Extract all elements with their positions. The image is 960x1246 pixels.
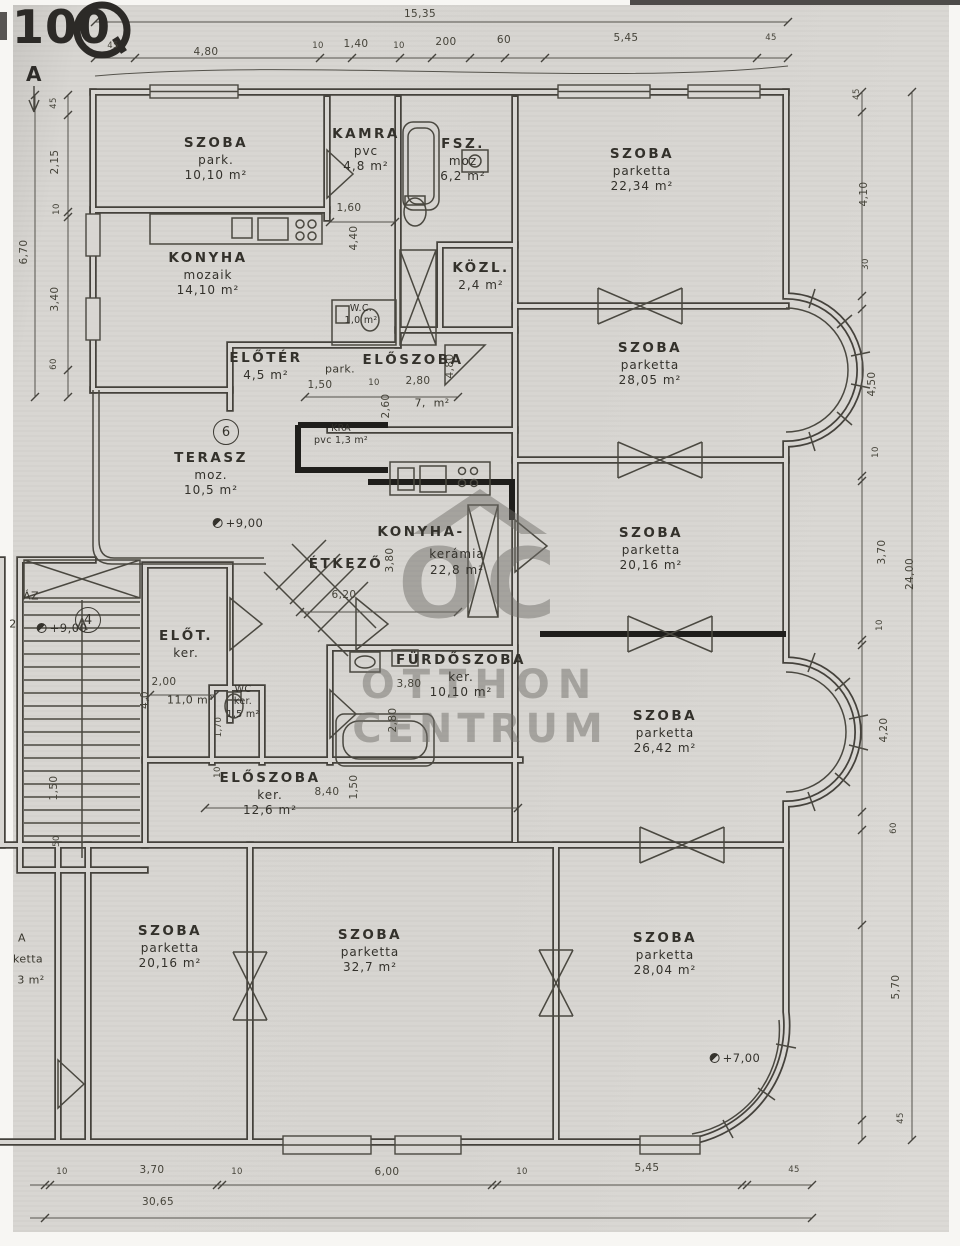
room-name: WC bbox=[227, 684, 260, 696]
room-name: KÖZL. bbox=[452, 260, 509, 278]
level-marker-icon bbox=[710, 1053, 720, 1063]
dimension-label: 45 bbox=[852, 88, 862, 100]
level-mark: +7,00 bbox=[710, 1051, 761, 1065]
dimension-label: 45 bbox=[896, 1112, 906, 1124]
room-name: ÉTKEZŐ bbox=[309, 556, 383, 574]
room-label: kerámia22,8 m² bbox=[429, 547, 485, 578]
detail-linework bbox=[24, 92, 870, 1146]
text-label: 3 m² bbox=[17, 974, 44, 987]
room-detail: 20,16 m² bbox=[138, 956, 202, 972]
dimension-label: 4,40 bbox=[348, 226, 360, 251]
room-label: FÜRDŐSZOBAker.10,10 m² bbox=[396, 652, 526, 701]
dimension-label: 2,15 bbox=[49, 150, 61, 175]
circled-number: 6 bbox=[213, 419, 239, 445]
room-label: KÖZL.2,4 m² bbox=[452, 260, 509, 293]
room-detail: parketta bbox=[610, 164, 674, 180]
room-detail: pvc bbox=[332, 144, 400, 160]
room-detail: 14,10 m² bbox=[168, 283, 247, 299]
dimension-label: 10 bbox=[52, 203, 62, 215]
room-label: SZOBAparketta20,16 m² bbox=[619, 525, 683, 574]
room-detail: 1,0 m² bbox=[345, 315, 378, 327]
room-detail: 10,10 m² bbox=[396, 685, 526, 701]
room-detail: moz bbox=[440, 154, 485, 170]
room-detail: 12,6 m² bbox=[219, 803, 320, 819]
room-name: ELŐSZOBA bbox=[219, 770, 320, 788]
room-name: SZOBA bbox=[618, 340, 682, 358]
room-label: ÉTKEZŐ bbox=[309, 556, 383, 574]
dimension-label: 1,50 bbox=[48, 776, 60, 801]
room-name: KRA bbox=[314, 423, 368, 435]
room-label: SZOBAparketta28,04 m² bbox=[633, 930, 697, 979]
room-label: SZOBAparketta22,34 m² bbox=[610, 146, 674, 195]
room-label: ELŐTÉR4,5 m² bbox=[229, 350, 302, 383]
dimension-label: 50 bbox=[52, 835, 62, 847]
room-detail: 1,5 m² bbox=[227, 709, 260, 721]
dimension-label: 10 bbox=[871, 446, 881, 458]
room-name: SZOBA bbox=[610, 146, 674, 164]
room-label: SZOBAparketta28,05 m² bbox=[618, 340, 682, 389]
room-name: ELŐSZOBA bbox=[362, 352, 463, 370]
room-detail: 6,2 m² bbox=[440, 169, 485, 185]
dimension-label: 2,00 bbox=[152, 676, 177, 688]
scan-artifact bbox=[630, 0, 960, 5]
dimension-label: 24,00 bbox=[904, 558, 916, 590]
room-label: KAMRApvc4,8 m² bbox=[332, 126, 400, 175]
room-name: KAMRA bbox=[332, 126, 400, 144]
room-name: KONYHA- bbox=[377, 524, 464, 542]
dimension-label: 45 bbox=[107, 41, 119, 51]
level-mark: +9,00 bbox=[37, 621, 88, 635]
room-name: TERASZ bbox=[174, 450, 248, 468]
room-label: FSZ.moz6,2 m² bbox=[440, 136, 485, 185]
room-detail: 10,10 m² bbox=[184, 168, 248, 184]
dimension-label: 3,80 bbox=[384, 548, 396, 573]
dimension-label: 60 bbox=[49, 358, 59, 370]
room-detail: 22,34 m² bbox=[610, 179, 674, 195]
room-detail: parketta bbox=[633, 726, 697, 742]
dimension-label: 1,70 bbox=[214, 717, 224, 738]
room-name: SZOBA bbox=[138, 923, 202, 941]
dimension-label: 10 bbox=[312, 41, 324, 51]
room-name: W.C. bbox=[345, 303, 378, 315]
level-marker-icon bbox=[37, 623, 47, 633]
dimension-label: 10 bbox=[875, 619, 885, 631]
text-label: 2 bbox=[9, 618, 16, 631]
dimension-label: 5,70 bbox=[890, 975, 902, 1000]
room-name: ELŐTÉR bbox=[229, 350, 302, 368]
room-detail: 22,8 m² bbox=[429, 563, 485, 579]
room-label: TERASZmoz.10,5 m² bbox=[174, 450, 248, 499]
dimension-label: 1,50 bbox=[348, 775, 360, 800]
room-name: FÜRDŐSZOBA bbox=[396, 652, 526, 670]
dimension-label: 10 bbox=[368, 378, 380, 388]
dimension-label: 60 bbox=[497, 34, 511, 46]
dimension-label: 60 bbox=[889, 822, 899, 834]
dimension-label: 6,20 bbox=[332, 589, 357, 601]
room-detail: 20,16 m² bbox=[619, 558, 683, 574]
dimension-label: 6,00 bbox=[375, 1166, 400, 1178]
dimension-label: 2,80 bbox=[406, 375, 431, 387]
dimension-label: 10 bbox=[56, 1167, 68, 1177]
room-name: SZOBA bbox=[338, 927, 402, 945]
room-detail: ker. bbox=[219, 788, 320, 804]
room-label: ELŐSZOBA bbox=[362, 352, 463, 370]
dimension-label: 4,20 bbox=[878, 718, 890, 743]
scan-artifact bbox=[0, 12, 7, 40]
room-detail: ker. bbox=[159, 646, 213, 662]
level-marker-icon bbox=[213, 518, 223, 528]
dimension-label: 2,60 bbox=[380, 394, 392, 419]
room-label: ELŐSZOBAker.12,6 m² bbox=[219, 770, 320, 819]
dimension-label: 30 bbox=[861, 258, 871, 270]
dimension-label: 10 bbox=[231, 1167, 243, 1177]
room-detail: 2,4 m² bbox=[452, 278, 509, 294]
dimension-label: 200 bbox=[435, 36, 456, 48]
text-label: ÁZ bbox=[23, 590, 39, 603]
room-name: kerámia bbox=[429, 547, 485, 563]
room-name: SZOBA bbox=[633, 708, 697, 726]
room-label: SZOBApark.10,10 m² bbox=[184, 135, 248, 184]
room-detail: 4,8 m² bbox=[332, 159, 400, 175]
room-label: SZOBAparketta20,16 m² bbox=[138, 923, 202, 972]
room-detail: 28,04 m² bbox=[633, 963, 697, 979]
room-detail: ker. bbox=[227, 696, 260, 708]
dimension-label: 4,50 bbox=[866, 372, 878, 397]
room-name: SZOBA bbox=[619, 525, 683, 543]
room-detail: parketta bbox=[138, 941, 202, 957]
room-detail: 28,05 m² bbox=[618, 373, 682, 389]
room-label: WCker.1,5 m² bbox=[227, 684, 260, 721]
dimension-label: 10 bbox=[393, 41, 405, 51]
text-label: A bbox=[18, 932, 26, 945]
dimension-label: 15,35 bbox=[404, 8, 436, 20]
scale-stamp: 100 bbox=[12, 0, 111, 54]
dimension-label: 45 bbox=[788, 1165, 800, 1175]
dimension-label: 3,70 bbox=[876, 540, 888, 565]
dimension-label: 6,70 bbox=[18, 240, 30, 265]
room-name: SZOBA bbox=[633, 930, 697, 948]
room-label: ELŐT.ker. bbox=[159, 628, 213, 661]
room-label: KONYHAmozaik14,10 m² bbox=[168, 250, 247, 299]
room-detail: pvc 1,3 m² bbox=[314, 435, 368, 447]
room-detail: moz. bbox=[174, 468, 248, 484]
dimension-label: 2,80 bbox=[387, 708, 399, 733]
text-label: ketta bbox=[13, 953, 43, 966]
room-label: SZOBAparketta26,42 m² bbox=[633, 708, 697, 757]
text-label: A bbox=[26, 62, 42, 86]
room-label: KONYHA- bbox=[377, 524, 464, 542]
room-detail: parketta bbox=[618, 358, 682, 374]
dimension-label: 4,80 bbox=[194, 46, 219, 58]
level-mark: +9,00 bbox=[213, 516, 264, 530]
room-detail: parketta bbox=[338, 945, 402, 961]
text-label: 7, m² bbox=[414, 397, 449, 410]
room-label: W.C.1,0 m² bbox=[345, 303, 378, 328]
scanned-floorplan-page: { "stamp": {"text": "100"}, "watermark":… bbox=[0, 0, 960, 1246]
room-detail: 26,42 m² bbox=[633, 741, 697, 757]
room-detail: 32,7 m² bbox=[338, 960, 402, 976]
dimension-label: 1,60 bbox=[337, 202, 362, 214]
text-label: park. bbox=[325, 363, 355, 376]
room-name: FSZ. bbox=[440, 136, 485, 154]
dimension-label: 1,50 bbox=[308, 379, 333, 391]
room-name: ELŐT. bbox=[159, 628, 213, 646]
dimension-label: 45 bbox=[49, 97, 59, 109]
dimension-label: 1,40 bbox=[344, 38, 369, 50]
room-label: SZOBAparketta32,7 m² bbox=[338, 927, 402, 976]
floorplan-drawing bbox=[0, 0, 960, 1246]
dimension-label: 4,0 bbox=[139, 691, 151, 709]
dimension-label: 30,65 bbox=[142, 1196, 174, 1208]
dimension-label: 5,45 bbox=[614, 32, 639, 44]
dimension-label: 10 bbox=[516, 1167, 528, 1177]
room-detail: 4,5 m² bbox=[229, 368, 302, 384]
room-detail: park. bbox=[184, 153, 248, 169]
dimension-label: 3,70 bbox=[140, 1164, 165, 1176]
room-name: KONYHA bbox=[168, 250, 247, 268]
dimension-label: 45 bbox=[765, 33, 777, 43]
room-label: KRApvc 1,3 m² bbox=[314, 423, 368, 448]
dimension-label: 3,40 bbox=[49, 287, 61, 312]
room-name: SZOBA bbox=[184, 135, 248, 153]
window-openings bbox=[86, 85, 760, 1154]
room-detail: mozaik bbox=[168, 268, 247, 284]
room-detail: 10,5 m² bbox=[174, 483, 248, 499]
room-detail: ker. bbox=[396, 670, 526, 686]
room-detail: parketta bbox=[633, 948, 697, 964]
room-detail: parketta bbox=[619, 543, 683, 559]
dimension-label: 4,10 bbox=[858, 182, 870, 207]
text-label: 11,0 m² bbox=[167, 694, 213, 707]
dimension-label: 5,45 bbox=[635, 1162, 660, 1174]
